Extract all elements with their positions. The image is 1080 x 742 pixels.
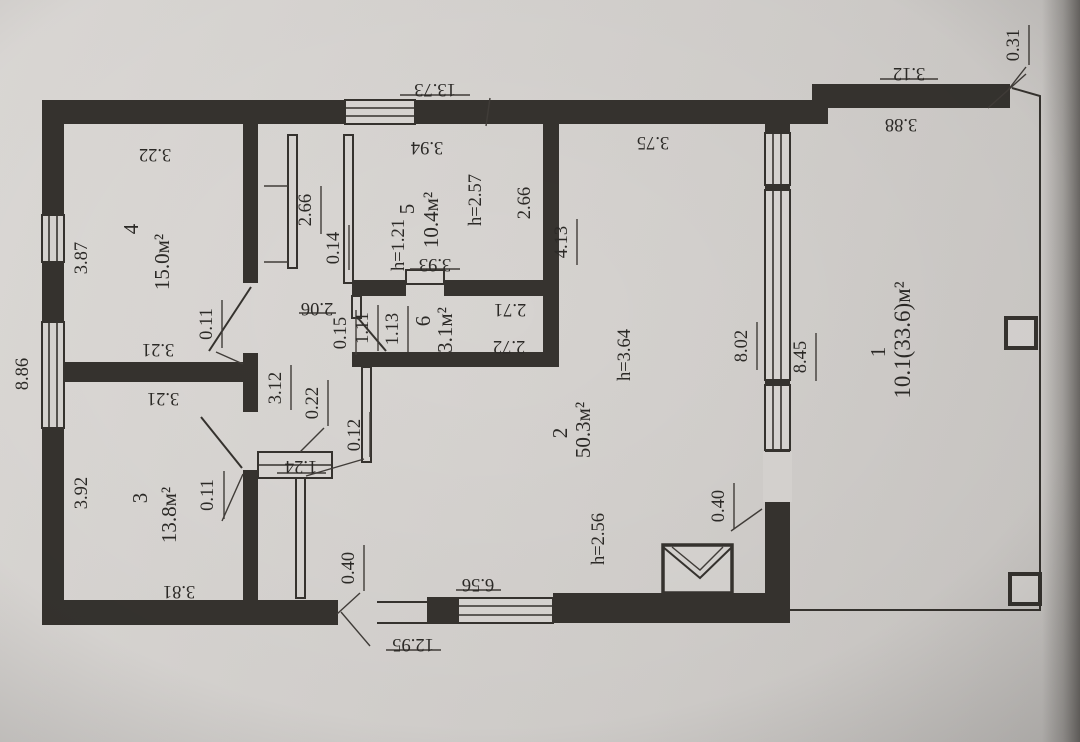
- dim-room6-dim1: 1.11: [353, 312, 373, 344]
- room1-number: 1: [866, 347, 890, 358]
- room5-number: 5: [395, 204, 419, 215]
- dim-thin-partition: 0.12: [345, 419, 365, 451]
- wall-room6-bottom: [352, 352, 559, 367]
- dim-room1-left: 8.45: [791, 341, 811, 373]
- dim-room6-partition: 0.15: [331, 317, 351, 349]
- dim-hall-wall: 0.22: [303, 387, 323, 419]
- leader: [337, 593, 360, 614]
- dim-room2-top: 3.75: [637, 132, 669, 152]
- room5-area: 10.4м²: [419, 192, 443, 248]
- dim-room2-height: h=3.64: [615, 329, 635, 381]
- dim-niche-width: 3.93: [419, 254, 451, 274]
- dim-bottom-window: 6.56: [462, 574, 494, 594]
- dim-wall-end-right: 0.40: [709, 490, 729, 522]
- dim-room3-bottom: 3.81: [163, 581, 195, 601]
- column: [1006, 318, 1036, 348]
- room3-number: 3: [128, 493, 152, 504]
- wall-hall-left-a: [243, 124, 258, 283]
- leader: [222, 474, 243, 521]
- dim-room6-dim2: 1.13: [383, 313, 403, 345]
- wall-room5-bottom-b: [444, 280, 543, 296]
- wall-room4-room3: [64, 362, 243, 382]
- dim-closet-height: 2.66: [296, 194, 316, 226]
- dim-room2-left-upper: 4.13: [552, 226, 572, 258]
- room6-number: 6: [411, 316, 435, 327]
- dim-closet-partition: 0.14: [324, 232, 344, 264]
- leader: [341, 612, 370, 646]
- veranda-outline: [790, 74, 1040, 610]
- dim-room3-top: 3.21: [147, 388, 179, 408]
- room6-area: 3.1м²: [433, 307, 457, 353]
- wall-top: [42, 100, 828, 124]
- dim-hall-length: 3.12: [266, 372, 286, 404]
- room3-area: 13.8м²: [157, 487, 181, 543]
- veranda-boundary: [790, 88, 1040, 610]
- dim-wall-end-left: 0.40: [339, 552, 359, 584]
- dim-room6-top: 2.71: [494, 299, 526, 319]
- leader: [1008, 67, 1026, 90]
- dim-room3-left: 3.92: [72, 477, 92, 509]
- wall-bottom-left: [42, 600, 338, 625]
- dim-room5-top: 3.94: [411, 137, 443, 157]
- column: [1010, 574, 1040, 604]
- dim-room5-height: h=2.57: [466, 174, 486, 226]
- window-bottom: [458, 598, 553, 623]
- room2-area: 50.3м²: [571, 402, 595, 458]
- floor-plan-photo: 13.73 3.12 3.22 3.94 3.75 3.88 3.21 3.21…: [0, 0, 1080, 742]
- dim-room6-bottom: 2.72: [493, 336, 525, 356]
- dim-closet-width: 1.24: [285, 456, 317, 476]
- dim-top-right: 3.12: [893, 63, 925, 83]
- dim-room1-top: 3.88: [885, 114, 917, 134]
- dim-hall-width: 2.06: [301, 298, 333, 318]
- room1-area: 10.1(33.6)м²: [890, 281, 915, 398]
- dim-room4-door-return: 0.11: [197, 308, 217, 340]
- dim-room2-height-low: h=2.56: [589, 513, 609, 565]
- dim-room3-door-return: 0.11: [198, 479, 218, 511]
- window-top: [345, 100, 415, 124]
- leader: [731, 509, 762, 531]
- door-leaf-room3: [201, 417, 242, 468]
- window-left-upper: [42, 215, 64, 262]
- window-left-lower: [42, 322, 64, 428]
- window-right-2: [765, 190, 790, 380]
- wall-hall-left-c: [243, 470, 258, 600]
- page-edge-shadow: [1042, 0, 1080, 742]
- dim-corner-return: 0.31: [1004, 29, 1024, 61]
- hall-partition: [296, 478, 305, 598]
- room2-number: 2: [548, 428, 572, 439]
- window-right-3: [765, 385, 790, 450]
- room4-number: 4: [119, 223, 143, 234]
- dim-bottom-total: 12.95: [392, 634, 434, 654]
- dim-left-total: 8.86: [13, 358, 33, 390]
- dim-top-total: 13.73: [414, 79, 456, 99]
- dim-room4-top: 3.22: [139, 144, 171, 164]
- dim-room4-left: 3.87: [72, 242, 92, 274]
- wall-top-right-wing: [812, 84, 1010, 108]
- dim-room4-bottom: 3.21: [142, 339, 174, 359]
- stove-symbol: [663, 545, 732, 593]
- leader: [300, 428, 324, 452]
- door-opening-room1: [763, 452, 792, 502]
- dim-room2-right: 8.02: [732, 330, 752, 362]
- wall-hall-left-b: [243, 353, 258, 412]
- dim-room5-right: 2.66: [515, 187, 535, 219]
- dim-niche-height: h=1.21: [389, 219, 409, 271]
- wall-room5-bottom-a: [352, 280, 406, 296]
- wall-bottom-right: [553, 593, 790, 623]
- room4-area: 15.0м²: [150, 234, 174, 290]
- floor-plan-drawing: 13.73 3.12 3.22 3.94 3.75 3.88 3.21 3.21…: [0, 0, 1080, 742]
- window-right-1: [765, 133, 790, 185]
- wall-bottom-pier: [427, 597, 458, 624]
